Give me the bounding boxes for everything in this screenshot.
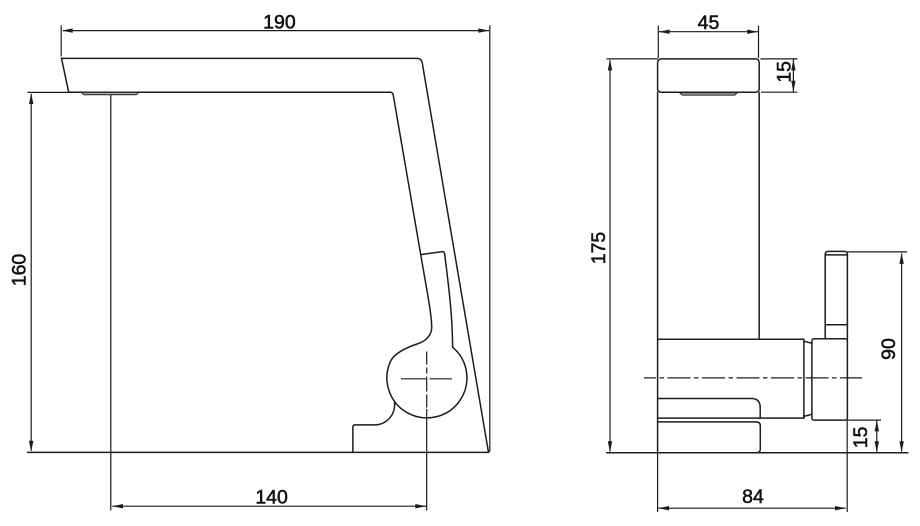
svg-text:140: 140	[255, 487, 288, 509]
svg-text:160: 160	[9, 254, 31, 287]
svg-text:84: 84	[742, 486, 764, 508]
svg-text:45: 45	[698, 12, 720, 34]
svg-text:175: 175	[588, 232, 610, 265]
svg-text:90: 90	[878, 338, 900, 360]
svg-text:190: 190	[263, 11, 296, 33]
svg-text:15: 15	[850, 426, 872, 448]
svg-text:15: 15	[773, 61, 795, 83]
